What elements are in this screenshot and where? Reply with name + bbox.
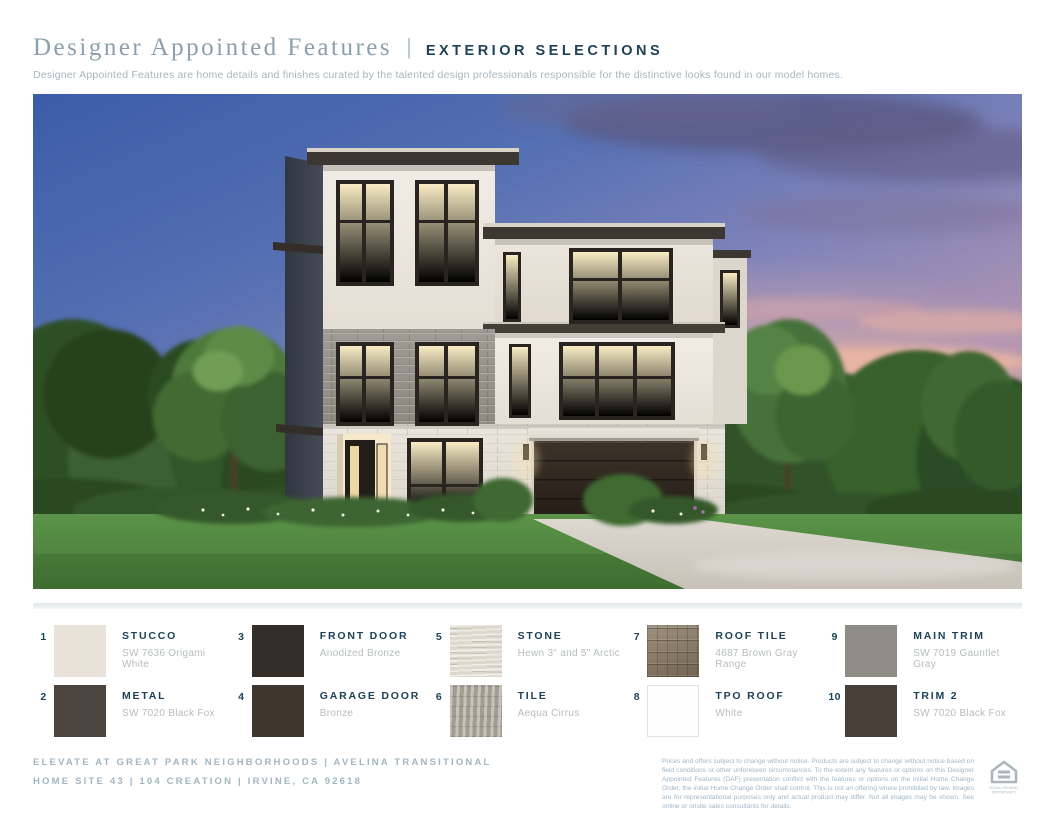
- swatch-name: TILE: [518, 690, 580, 702]
- svg-text:EQUAL HOUSING: EQUAL HOUSING: [990, 786, 1018, 790]
- material-swatch-grid: 1 STUCCO SW 7636 Origami White 2 METAL S…: [33, 625, 1022, 737]
- page-title: Designer Appointed Features: [33, 34, 392, 62]
- swatch-name: MAIN TRIM: [913, 630, 1022, 642]
- swatch-name: ROOF TILE: [715, 630, 824, 642]
- equal-housing-icon: EQUAL HOUSING OPPORTUNITY: [986, 757, 1022, 797]
- metal-swatch: [54, 685, 106, 737]
- swatch-item-trim-2: 10 TRIM 2 SW 7020 Black Fox: [824, 685, 1022, 737]
- swatch-desc: Bronze: [320, 708, 420, 719]
- front-door-swatch: [252, 625, 304, 677]
- roof-tile-swatch: [647, 625, 699, 677]
- swatch-name: METAL: [122, 690, 215, 702]
- swatch-number: 4: [231, 685, 252, 703]
- header-description: Designer Appointed Features are home det…: [33, 69, 1022, 81]
- swatch-name: GARAGE DOOR: [320, 690, 420, 702]
- swatch-item-front-door: 3 FRONT DOOR Anodized Bronze: [231, 625, 429, 677]
- swatch-item-roof-tile: 7 ROOF TILE 4687 Brown Gray Range: [626, 625, 824, 677]
- swatch-number: 9: [824, 625, 845, 643]
- swatch-number: 5: [429, 625, 450, 643]
- swatch-name: TRIM 2: [913, 690, 1006, 702]
- homesite-line: HOME SITE 43 | 104 CREATION | IRVINE, CA…: [33, 776, 492, 787]
- swatch-number: 6: [429, 685, 450, 703]
- svg-text:OPPORTUNITY: OPPORTUNITY: [992, 790, 1017, 794]
- swatch-number: 3: [231, 625, 252, 643]
- stucco-swatch: [54, 625, 106, 677]
- swatch-item-tpo-roof: 8 TPO ROOF White: [626, 685, 824, 737]
- swatch-desc: SW 7636 Origami White: [122, 648, 231, 670]
- swatch-desc: SW 7019 Gauntlet Gray: [913, 648, 1022, 670]
- footer: ELEVATE AT GREAT PARK NEIGHBORHOODS | AV…: [33, 757, 1022, 812]
- header: Designer Appointed Features | EXTERIOR S…: [33, 34, 1022, 62]
- swatch-number: 8: [626, 685, 647, 703]
- swatch-name: FRONT DOOR: [320, 630, 409, 642]
- trim-2-swatch: [845, 685, 897, 737]
- swatch-desc: Anodized Bronze: [320, 648, 409, 659]
- garage-door-swatch: [252, 685, 304, 737]
- stone-swatch: [450, 625, 502, 677]
- main-trim-swatch: [845, 625, 897, 677]
- swatch-name: STONE: [518, 630, 620, 642]
- swatch-number: 2: [33, 685, 54, 703]
- daf-exterior-selections-sheet: Designer Appointed Features | EXTERIOR S…: [0, 0, 1055, 815]
- swatch-item-metal: 2 METAL SW 7020 Black Fox: [33, 685, 231, 737]
- swatch-name: TPO ROOF: [715, 690, 784, 702]
- swatch-item-tile: 6 TILE Aequa Cirrus: [429, 685, 627, 737]
- community-info: ELEVATE AT GREAT PARK NEIGHBORHOODS | AV…: [33, 757, 492, 787]
- tile-swatch: [450, 685, 502, 737]
- swatch-desc: SW 7020 Black Fox: [913, 708, 1006, 719]
- community-line: ELEVATE AT GREAT PARK NEIGHBORHOODS | AV…: [33, 757, 492, 768]
- swatch-item-main-trim: 9 MAIN TRIM SW 7019 Gauntlet Gray: [824, 625, 1022, 677]
- dusk-house-illustration: [33, 94, 1022, 589]
- swatch-desc: SW 7020 Black Fox: [122, 708, 215, 719]
- swatch-number: 7: [626, 625, 647, 643]
- tpo-roof-swatch: [647, 685, 699, 737]
- title-divider: |: [406, 34, 412, 60]
- section-divider: [33, 603, 1022, 609]
- legal-disclaimer: Prices and offers subject to change with…: [662, 757, 974, 812]
- swatch-desc: Hewn 3" and 5" Arctic: [518, 648, 620, 659]
- swatch-desc: Aequa Cirrus: [518, 708, 580, 719]
- swatch-desc: White: [715, 708, 784, 719]
- swatch-name: STUCCO: [122, 630, 231, 642]
- equal-housing-logo: EQUAL HOUSING OPPORTUNITY: [986, 757, 1022, 802]
- swatch-number: 1: [33, 625, 54, 643]
- home-rendering-image: [33, 94, 1022, 589]
- swatch-item-stucco: 1 STUCCO SW 7636 Origami White: [33, 625, 231, 677]
- swatch-item-garage-door: 4 GARAGE DOOR Bronze: [231, 685, 429, 737]
- swatch-item-stone: 5 STONE Hewn 3" and 5" Arctic: [429, 625, 627, 677]
- swatch-desc: 4687 Brown Gray Range: [715, 648, 824, 670]
- swatch-number: 10: [824, 685, 845, 703]
- section-label: EXTERIOR SELECTIONS: [426, 43, 663, 59]
